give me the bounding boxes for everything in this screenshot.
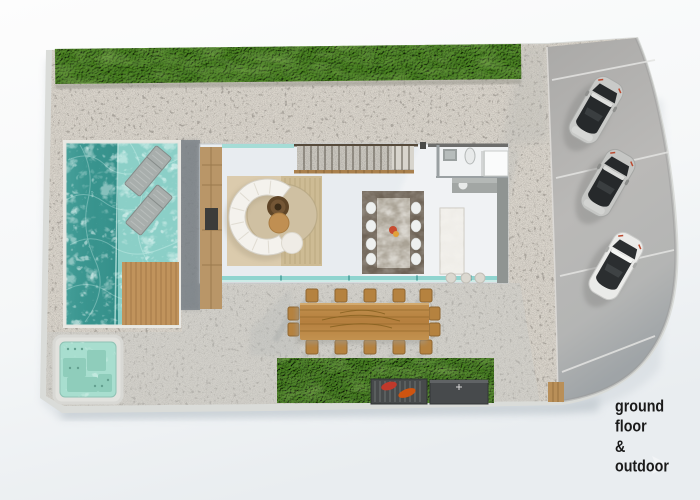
svg-text:outdoor: outdoor [615,457,669,475]
svg-text:floor: floor [615,417,647,435]
svg-text:&: & [615,438,625,456]
svg-text:ground: ground [615,397,664,415]
